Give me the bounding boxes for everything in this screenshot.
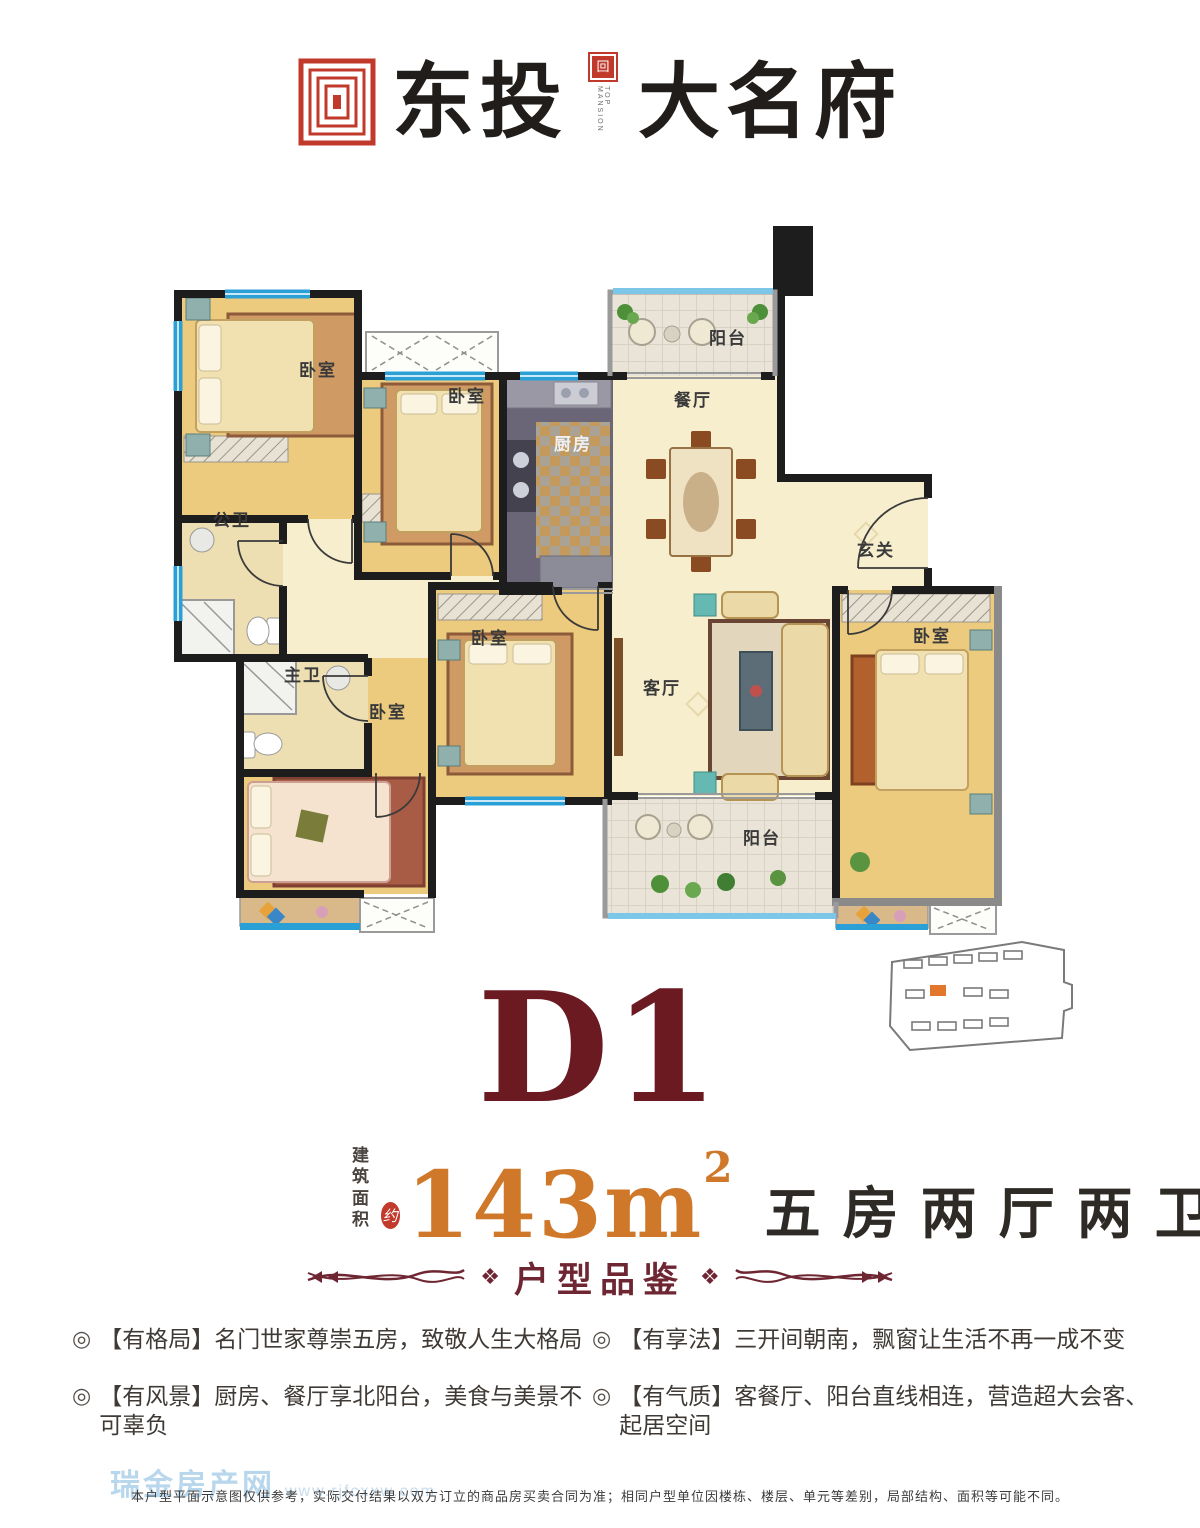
label-entry: 玄关 xyxy=(857,540,895,561)
feature-text: 【有风景】厨房、餐厅享北阳台，美食与美景不可辜负 xyxy=(99,1383,592,1441)
divider-ornament-right: ❖ xyxy=(700,1267,720,1289)
feature-item: ◎【有享法】三开间朝南，飘窗让生活不再一成不变 xyxy=(592,1326,1170,1355)
section-title: 户型品鉴 xyxy=(514,1252,686,1303)
feature-item: ◎【有风景】厨房、餐厅享北阳台，美食与美景不可辜负 xyxy=(72,1383,592,1441)
approx-seal: 约 xyxy=(381,1202,400,1229)
area-prefix-line2: 面积 xyxy=(352,1189,377,1232)
label-dining: 餐厅 xyxy=(674,390,712,411)
area-prefix: 建筑 面积 xyxy=(352,1146,377,1231)
feature-text: 【有格局】名门世家尊崇五房，致敬人生大格局 xyxy=(99,1326,582,1355)
brand-seal-label: TOP MANSION xyxy=(596,86,610,152)
brand-seal-icon xyxy=(298,58,376,146)
feature-item: ◎【有气质】客餐厅、阳台直线相连，营造超大会客、起居空间 xyxy=(592,1383,1170,1441)
label-north-balcony: 阳台 xyxy=(709,328,747,349)
unit-name: D1 xyxy=(0,972,1200,1124)
bedroom-2-furniture xyxy=(364,384,492,544)
section-divider: ❖ 户型品鉴 ❖ xyxy=(0,1252,1200,1303)
label-bedroom-1: 卧室 xyxy=(299,360,337,381)
label-master-bath: 主卫 xyxy=(284,665,322,686)
flourish-left-icon xyxy=(306,1263,466,1293)
feature-item: ◎【有格局】名门世家尊崇五房，致敬人生大格局 xyxy=(72,1326,592,1355)
bedroom-3-furniture xyxy=(248,778,424,886)
feature-text: 【有享法】三开间朝南，飘窗让生活不再一成不变 xyxy=(619,1326,1125,1355)
area-superscript: 2 xyxy=(703,1143,734,1192)
south-balcony-floor xyxy=(605,799,836,916)
label-living: 客厅 xyxy=(642,678,681,699)
area-value: 143m2 xyxy=(406,1168,735,1243)
feature-bullet: ◎ xyxy=(592,1383,611,1411)
label-bedroom-4: 卧室 xyxy=(471,628,509,649)
bedroom-4-furniture xyxy=(438,634,572,774)
label-bedroom-2: 卧室 xyxy=(448,386,486,407)
disclaimer-text: 本户型平面示意图仅供参考，实际交付结果以双方订立的商品房买卖合同为准；相同户型单… xyxy=(0,1486,1200,1505)
layout-description: 五房两厅两卫 xyxy=(765,1188,1200,1241)
bedroom-3-bay xyxy=(240,894,360,926)
brand-seal-small: 回 TOP MANSION xyxy=(588,52,618,152)
small-seal-icon: 回 xyxy=(588,52,618,82)
brand-logo: 东投 回 TOP MANSION 大名府 xyxy=(0,52,1200,152)
area-number: 143m xyxy=(406,1151,703,1259)
unit-area-row: 建筑 面积 约 143m2 五房两厅两卫 xyxy=(352,1146,1200,1243)
closet-bed4 xyxy=(438,594,542,620)
label-public-bath: 公卫 xyxy=(213,511,251,531)
floor-plan: 卧室 卧室 厨房 阳台 餐厅 玄关 公卫 主卫 卧室 卧室 客厅 卧室 阳台 xyxy=(170,226,1050,974)
closet-bed5 xyxy=(842,594,990,622)
divider-ornament-left: ❖ xyxy=(480,1267,500,1289)
brand-name: 东投 xyxy=(392,61,568,143)
label-bedroom-5: 卧室 xyxy=(913,626,951,647)
feature-bullet: ◎ xyxy=(592,1326,611,1354)
project-name: 大名府 xyxy=(638,61,902,143)
area-prefix-line1: 建筑 xyxy=(352,1146,377,1189)
label-kitchen: 厨房 xyxy=(554,434,592,455)
label-south-balcony: 阳台 xyxy=(743,828,781,849)
flourish-right-icon xyxy=(734,1263,894,1293)
label-bedroom-3: 卧室 xyxy=(369,702,407,723)
wall-column xyxy=(773,226,813,296)
feature-bullet: ◎ xyxy=(72,1326,91,1354)
feature-bullet: ◎ xyxy=(72,1383,91,1411)
feature-list: ◎【有格局】名门世家尊崇五房，致敬人生大格局 ◎【有风景】厨房、餐厅享北阳台，美… xyxy=(72,1326,1170,1440)
floor-plan-svg: 卧室 卧室 厨房 阳台 餐厅 玄关 公卫 主卫 卧室 卧室 客厅 卧室 阳台 xyxy=(170,226,1050,974)
feature-text: 【有气质】客餐厅、阳台直线相连，营造超大会客、起居空间 xyxy=(619,1383,1170,1441)
